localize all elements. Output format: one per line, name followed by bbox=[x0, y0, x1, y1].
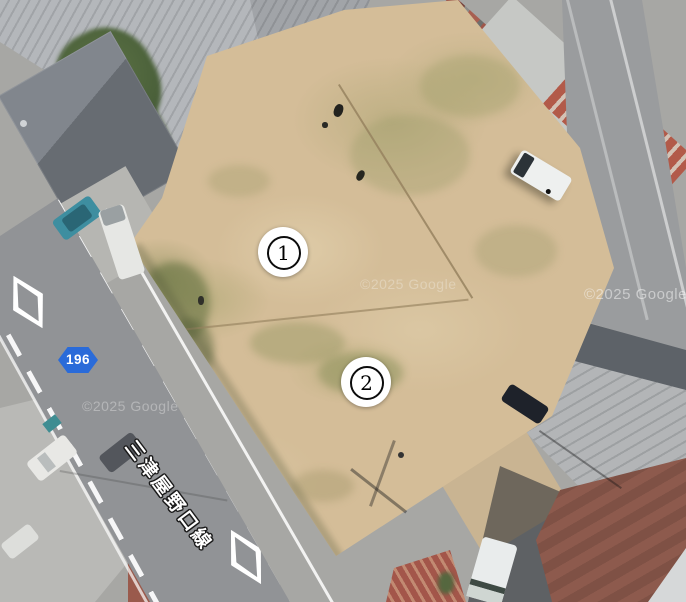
roof-skylight bbox=[20, 120, 27, 127]
bush bbox=[438, 572, 454, 594]
google-watermark: ©2025 Google bbox=[360, 276, 457, 292]
diamond-road-marking bbox=[216, 522, 276, 593]
weed-patch bbox=[350, 115, 470, 195]
dark-figure bbox=[332, 103, 345, 118]
utility-pole bbox=[398, 452, 404, 458]
lot-marker-2-number: 2 bbox=[350, 366, 384, 400]
lot-marker-2: 2 bbox=[341, 357, 391, 407]
google-watermark: ©2025 Google bbox=[82, 398, 179, 414]
weed-patch bbox=[208, 165, 270, 197]
car-windows bbox=[37, 452, 56, 472]
diamond-road-marking bbox=[0, 268, 57, 337]
aerial-map[interactable]: 三津屋野口線 線 196 ©2025 Google ©2025 Google ©… bbox=[0, 0, 686, 602]
lot-marker-1: 1 bbox=[258, 227, 308, 277]
dark-figure bbox=[322, 122, 328, 128]
dark-figure bbox=[226, 445, 240, 461]
weed-patch bbox=[420, 55, 520, 117]
weed-patch bbox=[475, 225, 557, 277]
dark-figure bbox=[198, 296, 204, 305]
google-watermark: ©2025 Google bbox=[584, 286, 686, 303]
van-wheel bbox=[545, 188, 552, 195]
lot-marker-1-number: 1 bbox=[267, 236, 301, 270]
diamond-road-marking-inner bbox=[8, 277, 49, 326]
diamond-road-marking-inner bbox=[225, 532, 267, 583]
